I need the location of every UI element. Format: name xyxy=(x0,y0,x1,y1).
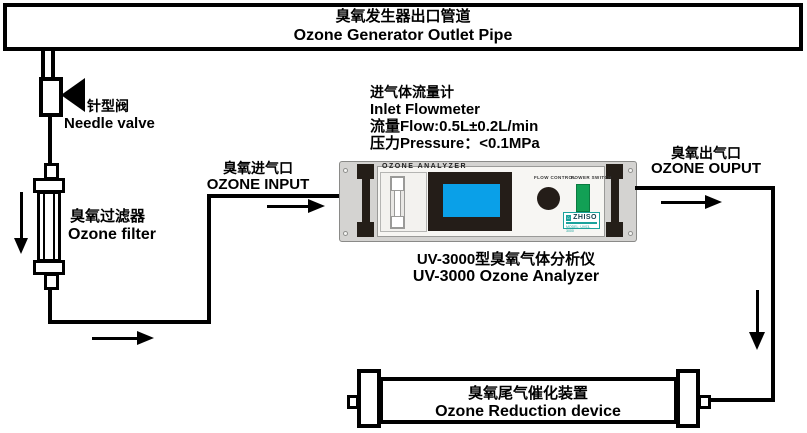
filter-body-inner-line-left xyxy=(43,194,45,259)
output-port-label-zh: 臭氧出气口 xyxy=(648,145,764,161)
needle-valve-cone xyxy=(61,78,85,112)
analyzer-handle-right-bar xyxy=(611,176,619,224)
needle-valve-label-zh: 针型阀 xyxy=(87,98,129,114)
reduction-cap-right xyxy=(676,369,700,428)
reduction-cap-left xyxy=(357,369,381,428)
pipe-banner-to-valve-left-wall xyxy=(41,51,45,79)
analyzer-display-screen xyxy=(443,184,500,217)
zhiso-logo: ⌂ ZHISO MODEL: UV03-3000 xyxy=(563,212,600,229)
output-flow-arrow-shaft xyxy=(661,201,706,204)
analyzer-flowmeter-tube xyxy=(394,191,401,217)
zhiso-logo-mark-icon: ⌂ xyxy=(566,215,571,221)
analyzer-screw-top-right xyxy=(628,168,633,173)
analyzer-screw-bottom-right xyxy=(628,231,633,236)
output-flow-arrow-head xyxy=(705,195,722,209)
flowmeter-note-line3: 流量Flow:0.5L±0.2L/min xyxy=(370,118,538,135)
input-flow-arrow-shaft xyxy=(267,205,309,208)
zhiso-logo-bar xyxy=(566,222,597,224)
analyzer-caption-en: UV-3000 Ozone Analyzer xyxy=(356,268,656,286)
input-port-label-en: OZONE INPUT xyxy=(200,176,316,193)
analyzer-handle-left-bar xyxy=(362,176,370,224)
input-flow-arrow-head xyxy=(308,199,325,213)
pipe-riser xyxy=(207,194,211,324)
pipe-bottom-horizontal xyxy=(48,320,211,324)
down-flow-arrow-shaft xyxy=(756,290,759,334)
flowmeter-note-line2: Inlet Flowmeter xyxy=(370,101,480,118)
pipe-banner-to-valve-right-wall xyxy=(51,51,55,79)
power-switch-label: POWER SWITCH xyxy=(571,175,612,180)
reduction-device-label-en: Ozone Reduction device xyxy=(383,403,673,421)
bottom-flow-arrow-head xyxy=(137,331,154,345)
flowmeter-note-line1: 进气体流量计 xyxy=(370,84,454,100)
bottom-flow-arrow-shaft xyxy=(92,337,138,340)
analyzer-panel-title: OZONE ANALYZER xyxy=(382,163,467,171)
pipe-output-vertical xyxy=(771,186,775,402)
pipe-output-horizontal xyxy=(635,186,775,190)
analyzer-screw-top-left xyxy=(343,168,348,173)
input-port-label-zh: 臭氧进气口 xyxy=(200,160,316,176)
ozone-system-diagram: 臭氧发生器出口管道 Ozone Generator Outlet Pipe 针型… xyxy=(0,0,807,433)
flow-control-label: FLOW CONTROL xyxy=(534,175,576,180)
reduction-nozzle-right xyxy=(698,395,711,409)
analyzer-flowmeter-bottom-float xyxy=(391,216,404,228)
flowmeter-note-line4: 压力Pressure：<0.1MPa xyxy=(370,135,540,152)
banner-title-zh: 臭氧发生器出口管道 xyxy=(3,8,803,25)
needle-valve-label-en: Needle valve xyxy=(64,115,155,132)
analyzer-handle-right-bottom xyxy=(606,222,623,237)
ozone-filter-label-zh: 臭氧过滤器 xyxy=(70,208,145,225)
filter-body xyxy=(37,191,61,262)
zhiso-brand-text: ZHISO xyxy=(573,214,597,221)
pipe-filter-down xyxy=(48,288,52,324)
analyzer-handle-left-bottom xyxy=(357,222,374,237)
needle-valve-body xyxy=(39,77,63,117)
analyzer-flowmeter-top-float xyxy=(391,177,404,191)
filter-body-inner-line-right xyxy=(53,194,55,259)
flow-control-knob[interactable] xyxy=(537,187,560,210)
pipe-to-reduction-device xyxy=(709,398,773,402)
ozone-filter-label-en: Ozone filter xyxy=(68,226,156,244)
down-flow-arrow-head xyxy=(749,332,765,350)
output-port-label-en: OZONE OUPUT xyxy=(648,160,764,177)
pipe-input-horizontal xyxy=(207,194,341,198)
banner-title-en: Ozone Generator Outlet Pipe xyxy=(3,27,803,45)
reduction-device-label-zh: 臭氧尾气催化装置 xyxy=(383,385,673,402)
analyzer-screw-bottom-left xyxy=(343,231,348,236)
filter-flow-arrow-shaft xyxy=(20,192,23,240)
zhiso-model-text: MODEL: UV03-3000 xyxy=(566,225,597,233)
analyzer-caption-zh: UV-3000型臭氧气体分析仪 xyxy=(356,251,656,268)
power-switch-button[interactable] xyxy=(576,184,590,212)
filter-flow-arrow-head xyxy=(14,238,28,254)
pipe-valve-to-filter xyxy=(48,115,52,165)
